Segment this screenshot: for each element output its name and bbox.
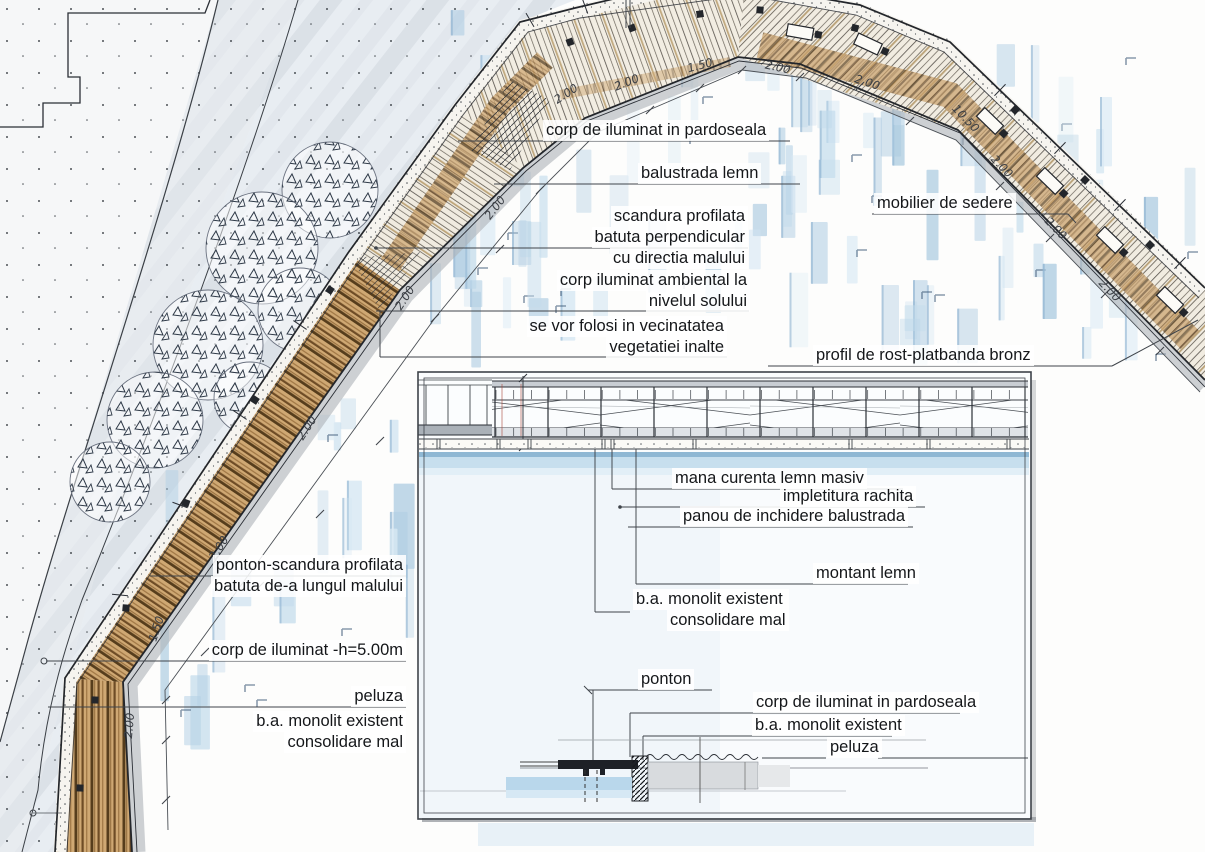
- water-wash-edge: [406, 565, 408, 638]
- water-wash-edge: [1082, 327, 1084, 359]
- floor-light-fixture: [76, 784, 83, 791]
- water-wash-edge: [999, 256, 1001, 321]
- water-wash: [817, 90, 832, 128]
- concrete-wall-hatched: [632, 756, 648, 801]
- dim-tick: [162, 796, 170, 804]
- water-tick: [478, 268, 488, 275]
- water-wash: [811, 222, 828, 284]
- tree-canopy: [70, 442, 150, 522]
- inset-wash-below: [478, 823, 1034, 846]
- water-wash-edge: [1031, 45, 1033, 123]
- water-tick: [257, 700, 267, 707]
- label-corp-ambiental: corp iluminat ambiental la nivelul solul…: [557, 270, 750, 312]
- water-tick: [935, 295, 945, 302]
- water-wash: [197, 664, 207, 706]
- water-wash: [927, 170, 939, 261]
- floor-light-fixture: [756, 6, 764, 14]
- label-peluza-plan: peluza: [351, 686, 406, 707]
- label-ponton: ponton: [638, 669, 694, 690]
- water-wash: [471, 292, 481, 368]
- label-ponton-scandura: ponton-scandura profilata batuta de-a lu…: [211, 555, 406, 597]
- water-tick: [1188, 252, 1198, 259]
- dim-tick: [496, 245, 504, 253]
- water-wash-edge: [1043, 264, 1045, 319]
- water-wash-edge: [390, 420, 392, 453]
- dim-tick: [376, 437, 384, 445]
- water-tick: [857, 250, 867, 257]
- scanned-plan-sheet: 2.001.502.002.002.002.002.002.001.502.00…: [0, 0, 1205, 852]
- label-peluza-sectiune: peluza: [827, 737, 882, 758]
- water-wash: [503, 277, 511, 328]
- water-wash-edge: [790, 273, 792, 348]
- water-wash: [1034, 244, 1044, 278]
- dim-tick: [646, 106, 654, 114]
- soil-band: [648, 762, 758, 789]
- water-wash: [1185, 168, 1196, 246]
- water-wash-edge: [512, 221, 514, 265]
- water-wash: [882, 285, 899, 350]
- label-mobilier-sedere: mobilier de sedere: [874, 193, 1016, 214]
- label-impletitura-rachita: impletitura rachita: [780, 486, 916, 507]
- water-wash: [451, 10, 465, 35]
- water-tick: [703, 97, 713, 104]
- label-panou-inchidere: panou de inchidere balustrada: [680, 506, 908, 527]
- label-balustrada-lemn: balustrada lemn: [638, 163, 761, 184]
- label-corp-iluminat-pardoseala-2: corp de iluminat in pardoseala: [753, 692, 979, 713]
- label-montant-lemn: montant lemn: [813, 563, 919, 584]
- water-wash-edge: [342, 498, 344, 558]
- label-corp-iluminat-h500: corp de iluminat -h=5.00m: [209, 640, 406, 661]
- label-ba-monolit-inset: b.a. monolit existent consolidare mal: [633, 589, 789, 631]
- water-wash: [819, 160, 840, 195]
- water-wash: [749, 230, 761, 270]
- water-wash: [1003, 228, 1014, 288]
- label-ba-monolit-plan: b.a. monolit existent consolidare mal: [253, 711, 406, 753]
- water-wash-edge: [779, 128, 781, 165]
- water-wash: [576, 150, 591, 213]
- water-tick: [342, 629, 352, 636]
- water-wash-edge: [1100, 97, 1102, 166]
- water-wash: [847, 236, 858, 284]
- water-wash: [863, 113, 874, 148]
- water-tick: [852, 155, 862, 162]
- water-wash: [790, 273, 809, 348]
- water-wash: [881, 111, 901, 156]
- water-wash: [997, 44, 1015, 87]
- water-tick: [245, 685, 255, 692]
- label-ba-monolit-2: b.a. monolit existent: [752, 715, 905, 736]
- dimension-value: 2.00: [121, 712, 137, 739]
- water-wash: [783, 171, 792, 227]
- water-wash-edge: [451, 10, 453, 35]
- water-tick: [1126, 58, 1136, 65]
- label-profil-rost: profil de rost-platbanda bronz: [813, 345, 1034, 366]
- water-wash-edge: [819, 160, 821, 195]
- water-wash-edge: [882, 285, 884, 350]
- water-wash: [900, 319, 921, 346]
- water-wash-edge: [811, 222, 813, 284]
- water-wash: [1059, 77, 1074, 143]
- water-wash: [1043, 264, 1057, 319]
- label-scandura-profilata: scandura profilata batuta perpendicular …: [592, 206, 748, 269]
- label-vecinatate-vegetatie: se vor folosi in vecinatatea vegetatiei …: [527, 316, 727, 358]
- floor-light-fixture: [122, 604, 130, 612]
- deck-strip-section: [419, 439, 1029, 449]
- floor-light-fixture: [696, 10, 704, 18]
- water-wash-edge: [927, 285, 929, 345]
- label-corp-iluminat-pardoseala: corp de iluminat in pardoseala: [543, 120, 769, 141]
- ponton-deck-profile: [558, 760, 638, 769]
- floor-light-fixture: [91, 696, 98, 703]
- water-wash: [341, 398, 356, 429]
